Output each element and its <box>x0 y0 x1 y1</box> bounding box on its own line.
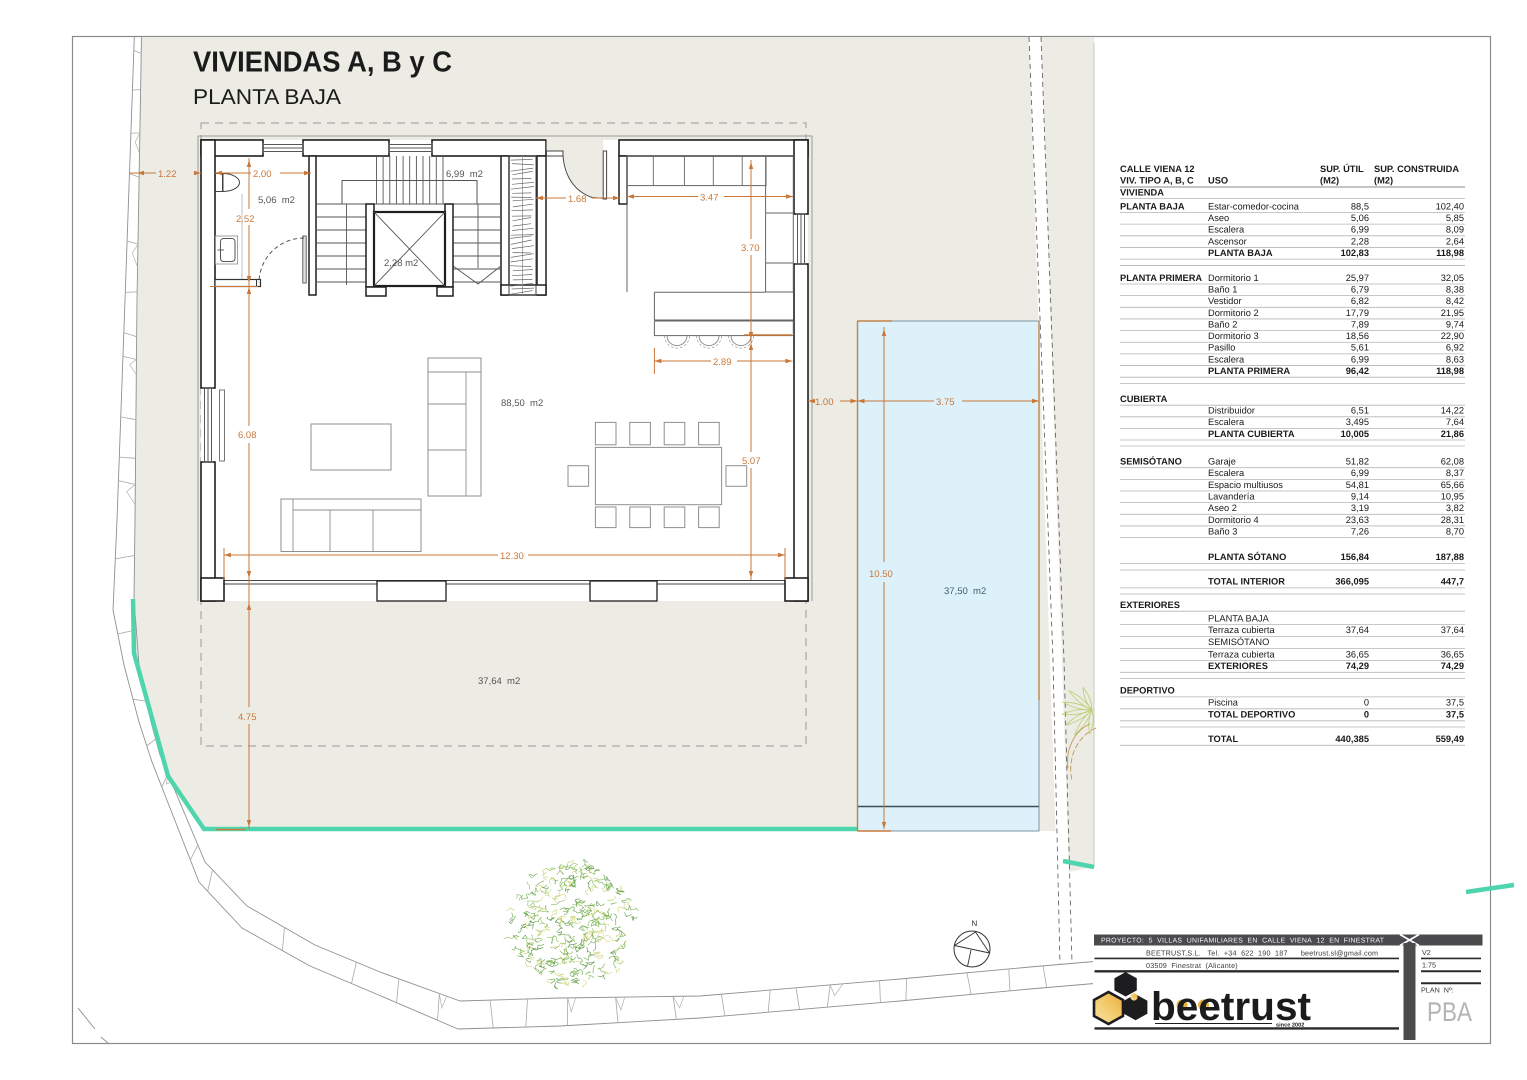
svg-text:21,95: 21,95 <box>1441 308 1464 318</box>
svg-text:Terraza cubierta: Terraza cubierta <box>1208 649 1275 659</box>
svg-text:28,31: 28,31 <box>1441 515 1464 525</box>
svg-text:VIV. TIPO A, B, C: VIV. TIPO A, B, C <box>1120 176 1194 186</box>
svg-text:EXTERIORES: EXTERIORES <box>1208 661 1268 671</box>
svg-text:5,06: 5,06 <box>1351 213 1369 223</box>
svg-text:6,99: 6,99 <box>1351 468 1369 478</box>
svg-text:2,28 m2: 2,28 m2 <box>384 258 418 269</box>
svg-text:51,82: 51,82 <box>1346 457 1369 467</box>
svg-text:BEETRUST,S.L. Tel. +34 622: BEETRUST,S.L. Tel. +34 622 190 187 beetr… <box>1146 949 1378 958</box>
svg-text:6,99: 6,99 <box>1351 354 1369 364</box>
svg-text:Dormitorio 4: Dormitorio 4 <box>1208 515 1259 525</box>
svg-text:5,06 m2: 5,06 m2 <box>258 195 295 206</box>
svg-text:1:75: 1:75 <box>1422 961 1436 970</box>
svg-text:Escalera: Escalera <box>1208 417 1245 427</box>
svg-text:VIVIENDA: VIVIENDA <box>1120 188 1164 198</box>
svg-text:74,29: 74,29 <box>1346 661 1369 671</box>
svg-text:118,98: 118,98 <box>1436 248 1464 258</box>
svg-text:PLANTA BAJA: PLANTA BAJA <box>1208 613 1270 623</box>
svg-text:CUBIERTA: CUBIERTA <box>1120 394 1168 404</box>
svg-text:(M2): (M2) <box>1320 176 1339 186</box>
svg-text:Escalera: Escalera <box>1208 225 1245 235</box>
svg-text:18,56: 18,56 <box>1346 331 1369 341</box>
svg-text:3,495: 3,495 <box>1346 417 1369 427</box>
svg-text:14,22: 14,22 <box>1441 406 1464 416</box>
svg-text:Espacio multiusos: Espacio multiusos <box>1208 480 1283 490</box>
svg-text:96,42: 96,42 <box>1346 366 1369 376</box>
svg-text:PLANTA CUBIERTA: PLANTA CUBIERTA <box>1208 429 1295 439</box>
svg-text:3.47: 3.47 <box>700 193 719 204</box>
svg-text:Lavandería: Lavandería <box>1208 491 1255 501</box>
svg-text:23,63: 23,63 <box>1346 515 1369 525</box>
svg-text:TOTAL DEPORTIVO: TOTAL DEPORTIVO <box>1208 710 1295 720</box>
svg-text:88,50 m2: 88,50 m2 <box>501 398 543 409</box>
svg-text:SEMISÓTANO: SEMISÓTANO <box>1120 456 1182 467</box>
svg-text:Aseo: Aseo <box>1208 213 1229 223</box>
svg-text:PLANTA PRIMERA: PLANTA PRIMERA <box>1208 366 1290 376</box>
svg-text:6,79: 6,79 <box>1351 284 1369 294</box>
svg-text:17,79: 17,79 <box>1346 308 1369 318</box>
svg-text:1.22: 1.22 <box>158 169 177 180</box>
svg-text:2.89: 2.89 <box>713 357 732 368</box>
svg-text:7,26: 7,26 <box>1351 526 1369 536</box>
svg-text:10,005: 10,005 <box>1341 429 1369 439</box>
svg-text:SEMISÓTANO: SEMISÓTANO <box>1208 636 1269 647</box>
svg-text:0: 0 <box>1364 710 1369 720</box>
svg-text:447,7: 447,7 <box>1441 577 1464 587</box>
svg-text:8,09: 8,09 <box>1446 225 1464 235</box>
svg-text:6,51: 6,51 <box>1351 406 1369 416</box>
svg-text:USO: USO <box>1208 176 1228 186</box>
svg-text:7,64: 7,64 <box>1446 417 1464 427</box>
svg-text:5,85: 5,85 <box>1446 213 1464 223</box>
svg-text:DEPORTIVO: DEPORTIVO <box>1120 686 1175 696</box>
svg-text:37,64: 37,64 <box>1441 625 1464 635</box>
svg-text:Dormitorio 3: Dormitorio 3 <box>1208 331 1259 341</box>
svg-text:36,65: 36,65 <box>1346 649 1369 659</box>
svg-text:8,38: 8,38 <box>1446 284 1464 294</box>
svg-text:Distribuidor: Distribuidor <box>1208 406 1255 416</box>
svg-text:37,64: 37,64 <box>1346 625 1369 635</box>
svg-text:10.50: 10.50 <box>869 569 893 580</box>
svg-text:PLANTA SÓTANO: PLANTA SÓTANO <box>1208 551 1286 562</box>
svg-text:88,5: 88,5 <box>1351 201 1369 211</box>
svg-text:Ascensor: Ascensor <box>1208 236 1247 246</box>
svg-text:Vestidor: Vestidor <box>1208 296 1242 306</box>
svg-text:Baño 1: Baño 1 <box>1208 284 1237 294</box>
svg-text:37,64 m2: 37,64 m2 <box>478 676 520 687</box>
svg-text:2,64: 2,64 <box>1446 236 1464 246</box>
svg-text:PLANTA BAJA: PLANTA BAJA <box>1208 248 1273 258</box>
svg-text:PLANTA BAJA: PLANTA BAJA <box>1120 201 1185 211</box>
svg-text:Estar-comedor-cocina: Estar-comedor-cocina <box>1208 201 1300 211</box>
svg-text:Baño 2: Baño 2 <box>1208 319 1237 329</box>
svg-text:2,28: 2,28 <box>1351 236 1369 246</box>
svg-text:V2: V2 <box>1422 948 1431 957</box>
svg-text:N: N <box>972 919 978 928</box>
svg-text:559,49: 559,49 <box>1436 734 1464 744</box>
svg-text:2.00: 2.00 <box>253 169 272 180</box>
svg-text:Garaje: Garaje <box>1208 457 1236 467</box>
svg-text:3.75: 3.75 <box>936 397 955 408</box>
svg-text:12.30: 12.30 <box>500 551 524 562</box>
svg-text:SUP. ÚTIL: SUP. ÚTIL <box>1320 163 1364 174</box>
svg-text:440,385: 440,385 <box>1335 734 1369 744</box>
svg-text:102,40: 102,40 <box>1436 201 1464 211</box>
svg-text:Baño 3: Baño 3 <box>1208 526 1237 536</box>
svg-text:5.07: 5.07 <box>742 456 761 467</box>
svg-text:25,97: 25,97 <box>1346 273 1369 283</box>
svg-text:9,74: 9,74 <box>1446 319 1464 329</box>
svg-text:TOTAL INTERIOR: TOTAL INTERIOR <box>1208 577 1285 587</box>
svg-text:PLAN Nº:: PLAN Nº: <box>1421 986 1454 995</box>
svg-text:366,095: 366,095 <box>1335 577 1369 587</box>
svg-text:32,05: 32,05 <box>1441 273 1464 283</box>
svg-text:Dormitorio 2: Dormitorio 2 <box>1208 308 1259 318</box>
svg-text:37,5: 37,5 <box>1446 710 1464 720</box>
svg-text:6,82: 6,82 <box>1351 296 1369 306</box>
svg-text:Terraza cubierta: Terraza cubierta <box>1208 625 1275 635</box>
svg-text:6,99 m2: 6,99 m2 <box>446 169 483 180</box>
svg-text:5,61: 5,61 <box>1351 343 1369 353</box>
svg-text:156,84: 156,84 <box>1341 552 1370 562</box>
svg-text:Escalera: Escalera <box>1208 354 1245 364</box>
svg-text:03509 Finestrat (Alicante): 03509 Finestrat (Alicante) <box>1146 961 1238 970</box>
svg-text:6.08: 6.08 <box>238 430 257 441</box>
svg-text:Pasillo: Pasillo <box>1208 343 1235 353</box>
svg-text:PLANTA PRIMERA: PLANTA PRIMERA <box>1120 273 1202 283</box>
svg-text:PBA: PBA <box>1427 997 1472 1027</box>
svg-text:VIVIENDAS A, B y C: VIVIENDAS A, B y C <box>193 47 452 79</box>
svg-text:Escalera: Escalera <box>1208 468 1245 478</box>
svg-text:118,98: 118,98 <box>1436 366 1464 376</box>
svg-text:187,88: 187,88 <box>1436 552 1464 562</box>
svg-text:8,42: 8,42 <box>1446 296 1464 306</box>
svg-text:2.52: 2.52 <box>236 214 255 225</box>
svg-text:21,86: 21,86 <box>1441 429 1464 439</box>
svg-text:1.00: 1.00 <box>815 397 834 408</box>
svg-text:102,83: 102,83 <box>1341 248 1369 258</box>
svg-text:10,95: 10,95 <box>1441 491 1464 501</box>
svg-text:PLANTA BAJA: PLANTA BAJA <box>193 85 342 109</box>
svg-text:9,14: 9,14 <box>1351 491 1369 501</box>
svg-text:EXTERIORES: EXTERIORES <box>1120 600 1180 610</box>
svg-text:0: 0 <box>1364 698 1369 708</box>
svg-text:36,65: 36,65 <box>1441 649 1464 659</box>
svg-text:Piscina: Piscina <box>1208 698 1239 708</box>
svg-text:8,70: 8,70 <box>1446 526 1464 536</box>
svg-text:Dormitorio 1: Dormitorio 1 <box>1208 273 1259 283</box>
svg-text:3.70: 3.70 <box>741 243 760 254</box>
svg-text:74,29: 74,29 <box>1441 661 1464 671</box>
svg-text:8,37: 8,37 <box>1446 468 1464 478</box>
svg-text:37,50 m2: 37,50 m2 <box>944 586 986 597</box>
svg-text:CALLE VIENA 12: CALLE VIENA 12 <box>1120 164 1195 174</box>
svg-text:65,66: 65,66 <box>1441 480 1464 490</box>
svg-text:6,92: 6,92 <box>1446 343 1464 353</box>
svg-text:54,81: 54,81 <box>1346 480 1369 490</box>
svg-text:PROYECTO: 5 VILLAS UNIFAMIL: PROYECTO: 5 VILLAS UNIFAMILIARES EN CALL… <box>1101 938 1385 945</box>
svg-text:TOTAL: TOTAL <box>1208 734 1238 744</box>
svg-text:37,5: 37,5 <box>1446 698 1464 708</box>
svg-text:8,63: 8,63 <box>1446 354 1464 364</box>
svg-text:1.68: 1.68 <box>568 194 587 205</box>
svg-text:(M2): (M2) <box>1374 176 1393 186</box>
svg-text:SUP. CONSTRUIDA: SUP. CONSTRUIDA <box>1374 164 1459 174</box>
svg-text:7,89: 7,89 <box>1351 319 1369 329</box>
svg-text:4.75: 4.75 <box>238 712 257 723</box>
svg-text:62,08: 62,08 <box>1441 457 1464 467</box>
svg-text:3,19: 3,19 <box>1351 503 1369 513</box>
svg-text:22,90: 22,90 <box>1441 331 1464 341</box>
svg-text:Aseo 2: Aseo 2 <box>1208 503 1237 513</box>
svg-text:6,99: 6,99 <box>1351 225 1369 235</box>
svg-text:3,82: 3,82 <box>1446 503 1464 513</box>
